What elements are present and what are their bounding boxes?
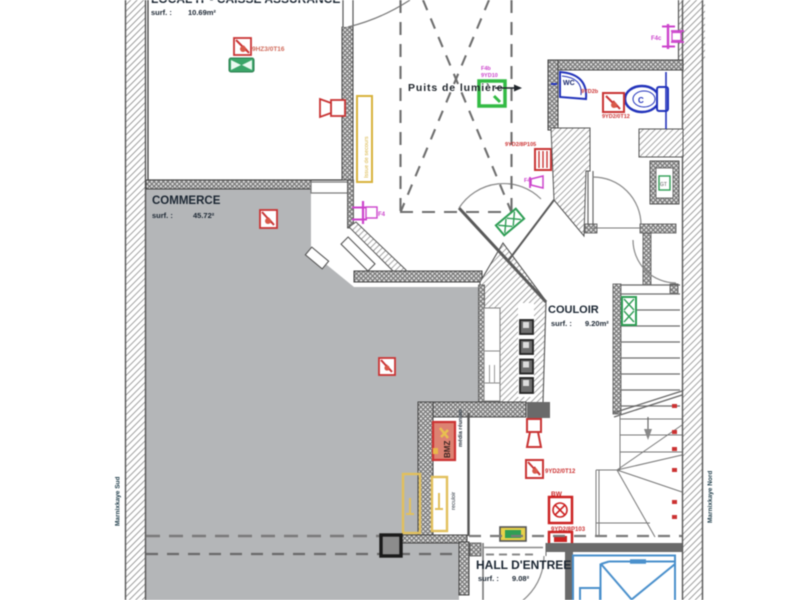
svg-text:surf. :: surf. : xyxy=(551,319,572,328)
svg-text:9HZ3/0T16: 9HZ3/0T16 xyxy=(252,46,285,53)
svg-text:F4b: F4b xyxy=(481,66,491,72)
svg-text:9YD2/8P105: 9YD2/8P105 xyxy=(505,142,536,148)
svg-text:surf. :: surf. : xyxy=(478,574,499,583)
svg-text:Issue de secours: Issue de secours xyxy=(364,136,370,178)
svg-text:9.08²: 9.08² xyxy=(512,574,530,583)
svg-text:9.20m²: 9.20m² xyxy=(585,319,609,328)
svg-text:10.69m²: 10.69m² xyxy=(188,8,216,17)
svg-text:média réunion: média réunion xyxy=(458,409,464,447)
svg-text:9YD2b: 9YD2b xyxy=(581,89,599,95)
svg-text:reculoir: reculoir xyxy=(451,492,457,510)
svg-text:F4c: F4c xyxy=(651,36,662,42)
svg-text:C: C xyxy=(638,96,644,105)
svg-text:Marnixkaye Sud: Marnixkaye Sud xyxy=(115,476,122,526)
svg-text:surf. :: surf. : xyxy=(152,211,173,220)
svg-text:surf. :: surf. : xyxy=(151,8,172,17)
svg-text:9YD2/0T12: 9YD2/0T12 xyxy=(602,114,630,120)
svg-text:COMMERCE: COMMERCE xyxy=(152,195,221,207)
svg-text:GT: GT xyxy=(660,182,667,188)
svg-text:HALL D'ENTREE: HALL D'ENTREE xyxy=(476,558,571,572)
svg-text:45.72²: 45.72² xyxy=(193,211,215,220)
svg-text:9YD10: 9YD10 xyxy=(481,73,498,79)
svg-text:F4: F4 xyxy=(378,212,386,218)
svg-text:BMZ: BMZ xyxy=(443,441,452,458)
svg-text:9YD2/0T12: 9YD2/0T12 xyxy=(545,469,576,475)
svg-text:COULOIR: COULOIR xyxy=(548,304,599,316)
svg-text:LOCAL IT - CAISSE ASSURANCE: LOCAL IT - CAISSE ASSURANCE xyxy=(151,0,340,6)
svg-text:Marnixkaye Nord: Marnixkaye Nord xyxy=(707,471,714,523)
svg-text:F4: F4 xyxy=(524,178,531,184)
svg-text:WC: WC xyxy=(563,80,575,87)
svg-text:Puits de lumière: Puits de lumière xyxy=(408,82,504,94)
